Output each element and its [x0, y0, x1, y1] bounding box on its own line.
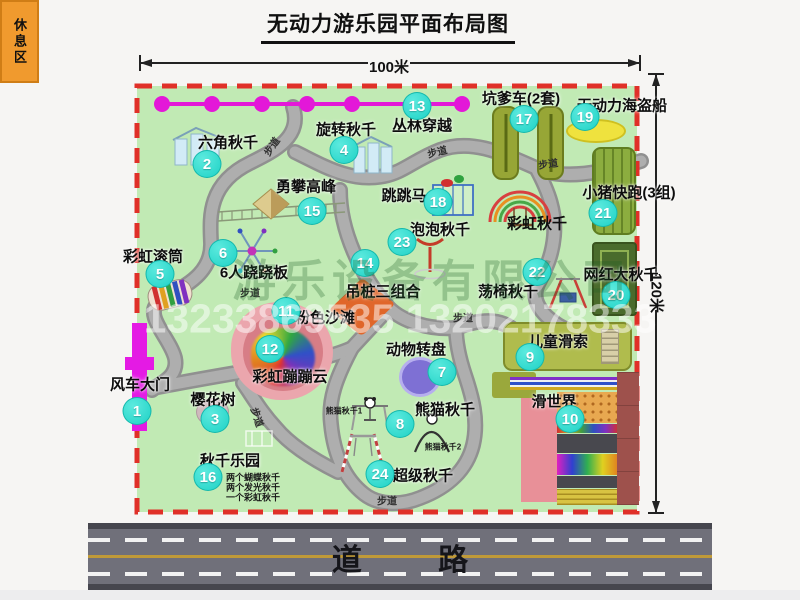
dimension-top-label: 100米: [369, 56, 409, 77]
item-label-1: 风车大门: [110, 374, 170, 395]
swing-park-structures: [246, 431, 272, 446]
item-label-23: 泡泡秋千: [410, 219, 470, 240]
item-label-15: 勇攀高峰: [276, 176, 336, 197]
item-label-12: 彩虹蹦蹦云: [252, 366, 327, 387]
item-marker-15: 15: [298, 197, 327, 225]
item-label-8: 熊猫秋千: [415, 399, 475, 420]
watermark-text: 13233869535 13202178333: [143, 296, 656, 343]
item-marker-18: 18: [424, 188, 453, 216]
item-marker-13: 13: [403, 92, 432, 120]
dimension-right-label: 120米: [647, 273, 668, 313]
floating-label: 熊猫秋千2: [425, 442, 461, 453]
item-marker-19: 19: [571, 103, 600, 131]
item-marker-2: 2: [193, 150, 222, 178]
item-marker-10: 10: [556, 405, 585, 433]
item-label-18: 跳跳马: [381, 185, 426, 206]
item-marker-7: 7: [428, 358, 457, 386]
item-marker-5: 5: [146, 260, 175, 288]
rotating-swing-icon: [352, 137, 392, 173]
item-marker-17: 17: [510, 105, 539, 133]
item-label-24: 超级秋千: [393, 465, 453, 486]
floating-label: 步道: [377, 493, 397, 508]
floating-label: 熊猫秋千1: [326, 406, 362, 417]
item-marker-3: 3: [201, 405, 230, 433]
item-marker-4: 4: [330, 136, 359, 164]
floating-label: 一个彩虹秋千: [226, 491, 280, 504]
item-marker-1: 1: [123, 397, 152, 425]
page-title: 无动力游乐园平面布局图: [261, 8, 515, 44]
item-marker-24: 24: [366, 460, 395, 488]
item-marker-8: 8: [386, 410, 415, 438]
item-marker-21: 21: [589, 199, 618, 227]
floating-label: 步道: [537, 154, 559, 172]
item-marker-9: 9: [516, 343, 545, 371]
item-marker-16: 16: [194, 463, 223, 491]
playground-map-screenshot: 无动力游乐园平面布局图: [0, 0, 800, 600]
floating-label: 彩虹秋千: [507, 213, 567, 234]
